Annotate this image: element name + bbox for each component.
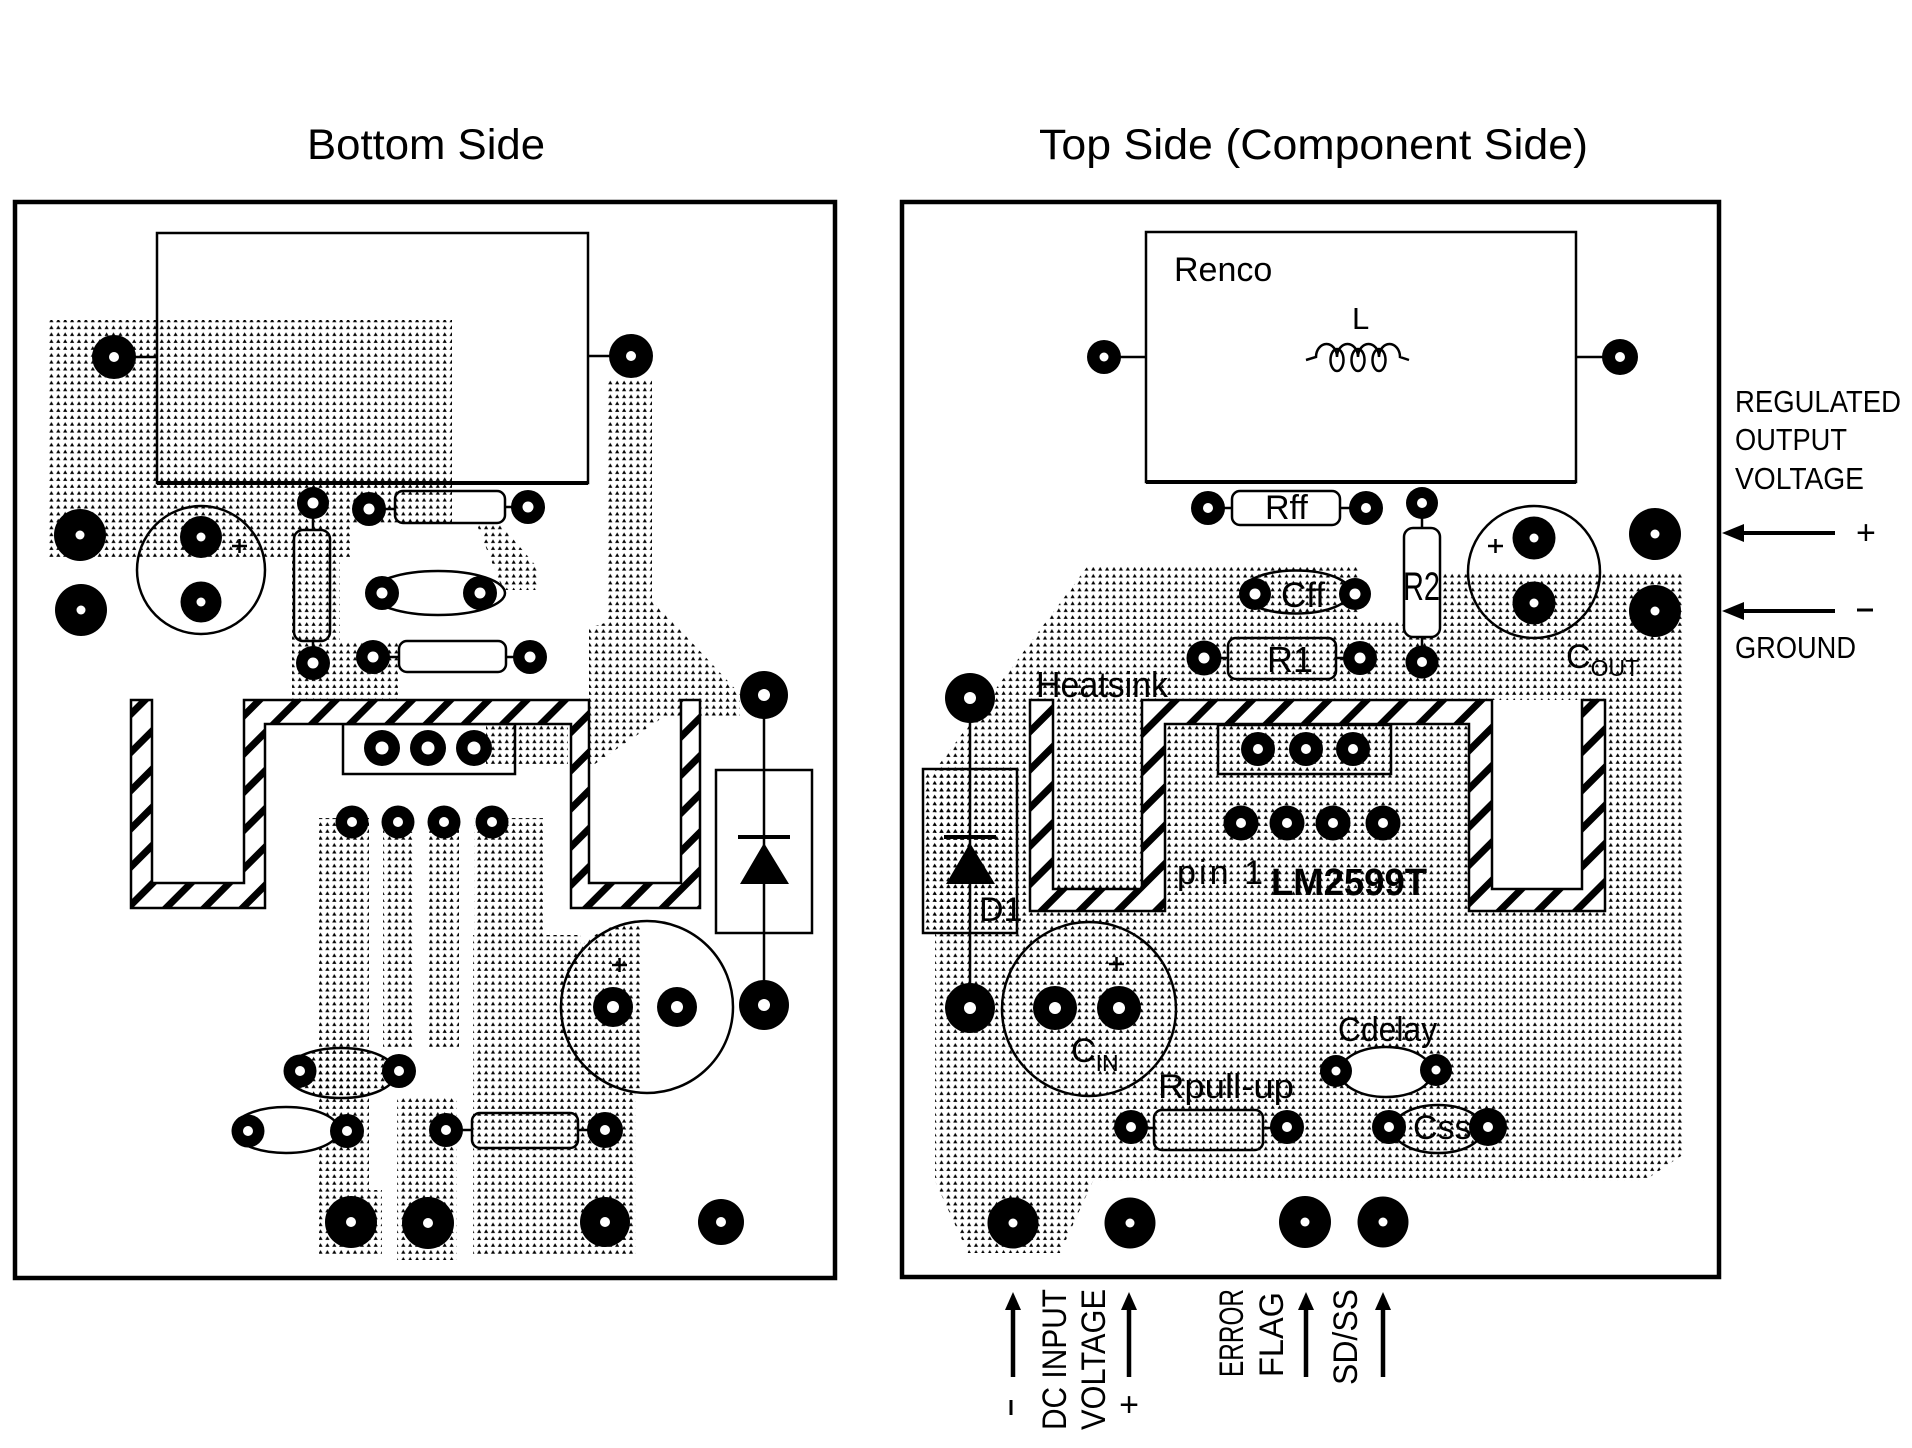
svg-text:Rpull-up: Rpull-up: [1158, 1068, 1294, 1106]
svg-text:Heatsink: Heatsink: [1036, 664, 1169, 705]
svg-text:Top Side (Component Side): Top Side (Component Side): [1039, 121, 1588, 169]
svg-text:Bottom Side: Bottom Side: [307, 121, 545, 169]
svg-text:GROUND: GROUND: [1735, 630, 1856, 665]
svg-text:Css: Css: [1413, 1109, 1472, 1147]
svg-text:+: +: [1119, 1386, 1139, 1424]
svg-text:D1: D1: [979, 891, 1022, 929]
svg-text:LM2599T: LM2599T: [1271, 862, 1427, 904]
svg-text:DC INPUT: DC INPUT: [1036, 1289, 1074, 1430]
svg-text:FLAG: FLAG: [1253, 1292, 1291, 1377]
svg-text:VOLTAGE: VOLTAGE: [1075, 1289, 1113, 1430]
svg-text:ERROR: ERROR: [1213, 1289, 1251, 1377]
svg-text:VOLTAGE: VOLTAGE: [1735, 461, 1864, 496]
svg-text:REGULATED: REGULATED: [1735, 384, 1901, 419]
svg-text:R1: R1: [1267, 639, 1313, 680]
svg-text:Renco: Renco: [1174, 251, 1272, 289]
svg-text:OUTPUT: OUTPUT: [1735, 422, 1847, 457]
svg-text:pin 1: pin 1: [1177, 854, 1263, 892]
svg-text:SD/SS: SD/SS: [1327, 1289, 1365, 1385]
svg-text:+: +: [1856, 514, 1876, 552]
svg-text:Cff: Cff: [1281, 576, 1325, 615]
svg-text:L: L: [1352, 301, 1369, 336]
svg-text:Rff: Rff: [1265, 489, 1308, 527]
svg-text:Cdelay: Cdelay: [1338, 1011, 1437, 1049]
svg-text:R2: R2: [1403, 565, 1440, 609]
